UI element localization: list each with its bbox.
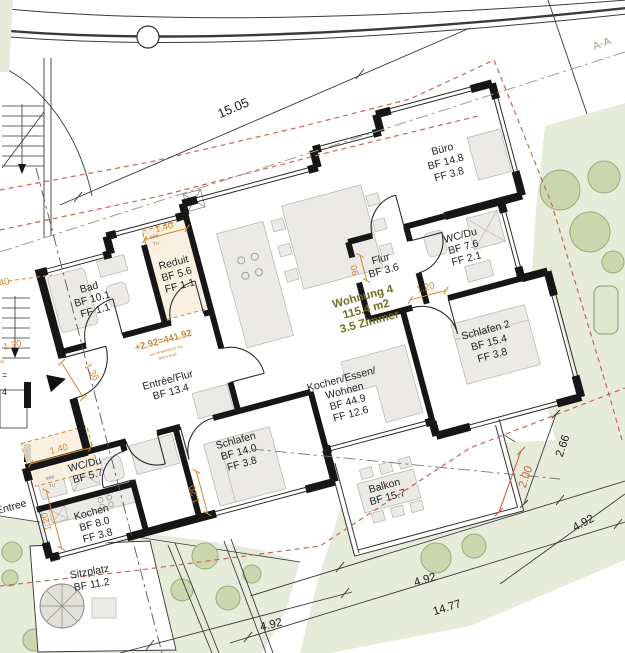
- room-label-entree-neighbor: Entree: [0, 497, 28, 517]
- floor-plan-drawing: Büro BF 14.8 FF 3.8 WC/Du BF 7.6 FF 2.1 …: [0, 0, 625, 653]
- dim-edge-b: 1.40: [0, 276, 11, 291]
- section-label: A-A: [591, 35, 613, 53]
- level-marker-partial-2: 4: [2, 387, 7, 397]
- level-marker-partial-1: =: [2, 370, 7, 380]
- hedge: [594, 286, 618, 334]
- edge-note-1: als hinweistext mit: [0, 359, 5, 364]
- staircase-top: [2, 104, 44, 174]
- terrace-table: [92, 598, 116, 618]
- dim-edge-a: 1.20: [2, 338, 22, 353]
- dim-facade: 15.05: [215, 95, 251, 122]
- floor-plan-canvas: Büro BF 14.8 FF 3.8 WC/Du BF 7.6 FF 2.1 …: [0, 0, 625, 653]
- survey-point-marker: [137, 26, 159, 48]
- entrance-arrow-icon: [46, 370, 68, 392]
